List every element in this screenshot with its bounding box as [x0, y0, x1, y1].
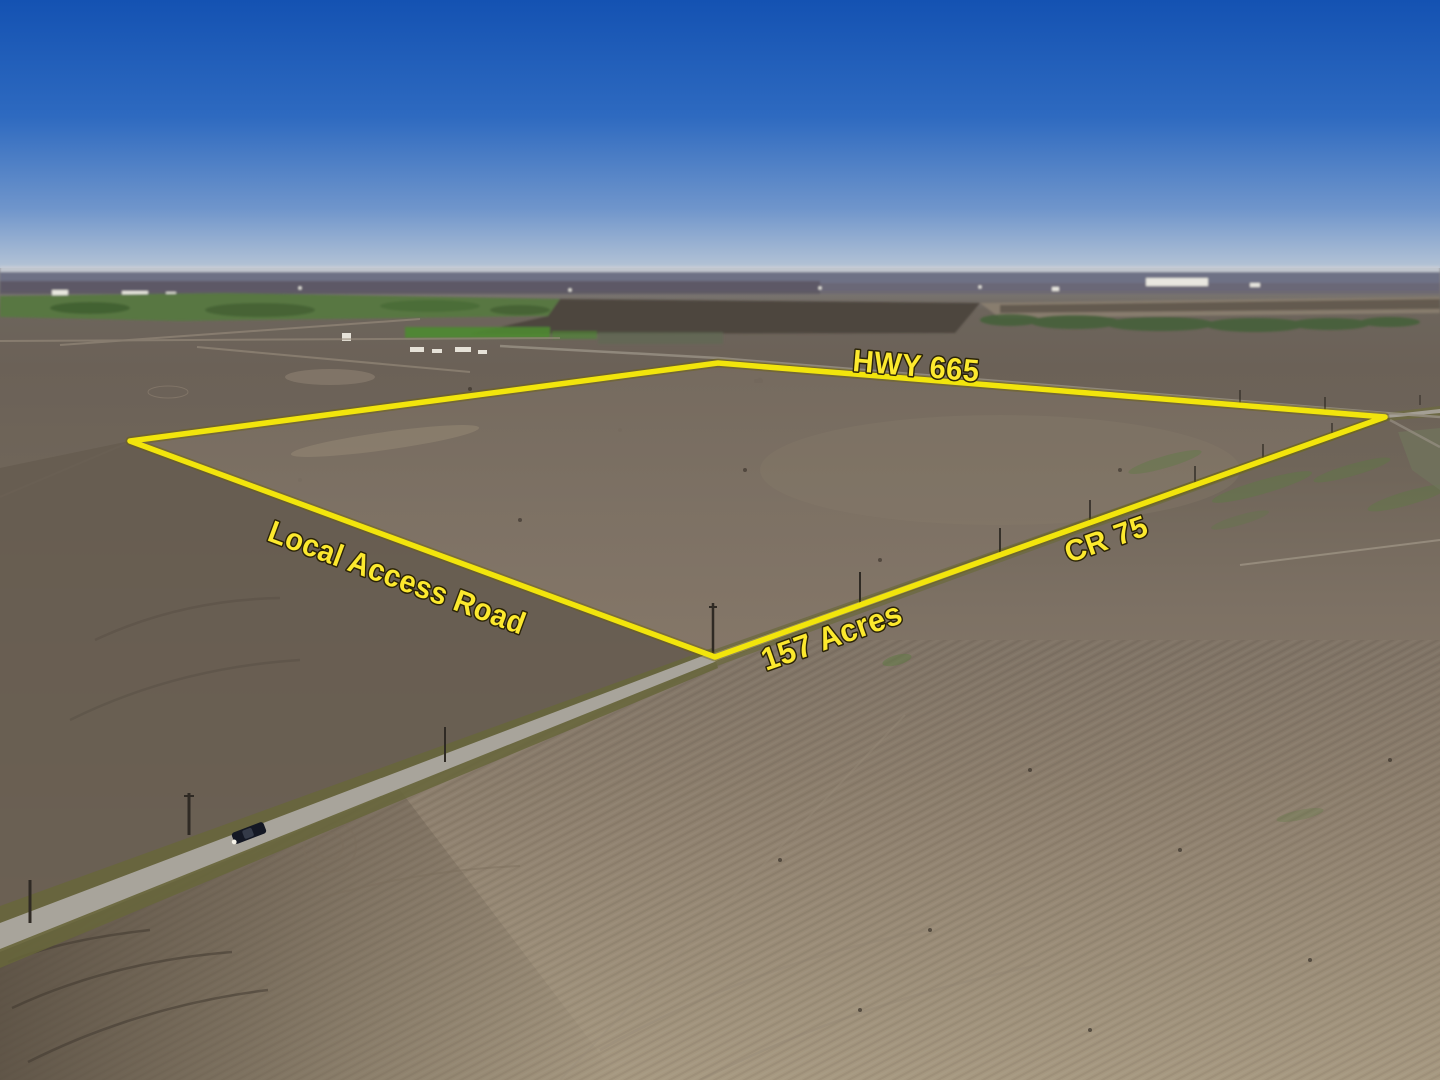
sky [0, 0, 1440, 278]
distant-dark-band-right [820, 283, 1440, 294]
horizon-speck [818, 286, 821, 289]
building [1250, 283, 1260, 287]
warehouse-building [1146, 278, 1208, 286]
light-region [760, 415, 1240, 525]
gray-green-strip [598, 332, 723, 344]
aerial-photo-canvas: HWY 665 Local Access Road CR 75 157 Acre… [0, 0, 1440, 1080]
building [1052, 287, 1059, 291]
aerial-photo: HWY 665 Local Access Road CR 75 157 Acre… [0, 0, 1440, 1080]
light-soil-patch [285, 369, 375, 385]
horizon-speck [298, 286, 301, 289]
horizon-speck [568, 288, 571, 291]
green-field-patch [405, 327, 550, 338]
horizon-speck [978, 285, 981, 288]
